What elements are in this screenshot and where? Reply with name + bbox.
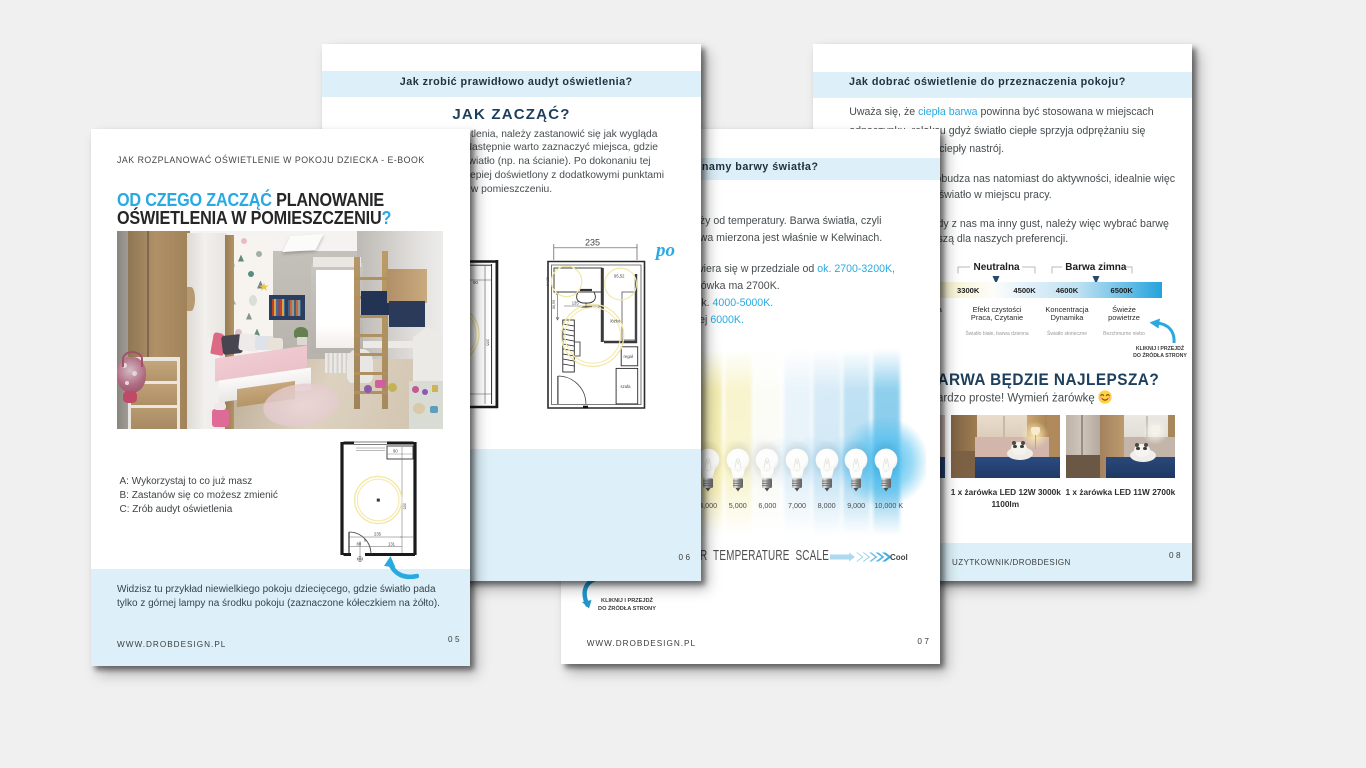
svg-text:235: 235 <box>374 532 382 537</box>
svg-text:90: 90 <box>393 449 398 454</box>
svg-text:regał: regał <box>624 354 633 359</box>
svg-text:95,52: 95,52 <box>614 274 625 279</box>
svg-text:90: 90 <box>473 280 479 285</box>
svg-text:131: 131 <box>388 541 396 546</box>
svg-text:szafa: szafa <box>621 384 632 389</box>
svg-text:135: 135 <box>572 301 580 306</box>
svg-text:265: 265 <box>486 339 491 346</box>
svg-text:80: 80 <box>357 541 362 546</box>
svg-text:235: 235 <box>585 238 600 248</box>
svg-text:łóżko: łóżko <box>611 319 621 324</box>
svg-text:265: 265 <box>403 503 407 509</box>
svg-text:64,85: 64,85 <box>546 277 550 286</box>
svg-text:8: 8 <box>364 539 366 543</box>
svg-text:86,59: 86,59 <box>552 300 556 309</box>
